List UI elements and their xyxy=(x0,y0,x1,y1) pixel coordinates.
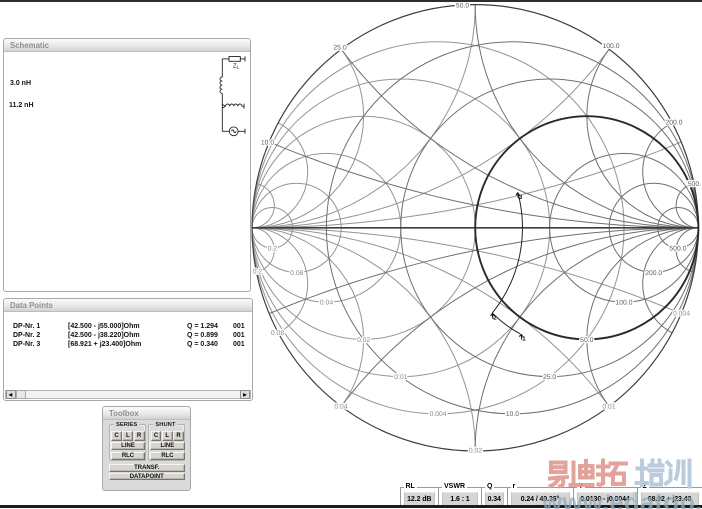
svg-text:0.004: 0.004 xyxy=(673,311,690,318)
svg-text:0.01: 0.01 xyxy=(602,404,615,411)
svg-text:0.02: 0.02 xyxy=(357,337,370,344)
svg-text:0.01: 0.01 xyxy=(394,374,407,381)
svg-text:100.0: 100.0 xyxy=(602,43,619,50)
svg-text:50.0: 50.0 xyxy=(580,337,593,344)
svg-text:ZL: ZL xyxy=(233,63,240,70)
svg-text:2: 2 xyxy=(493,315,497,322)
svg-text:0.08: 0.08 xyxy=(271,330,284,337)
svg-text:0.08: 0.08 xyxy=(290,270,303,277)
svg-text:200.0: 200.0 xyxy=(645,270,662,277)
svg-text:0.04: 0.04 xyxy=(320,300,333,307)
svg-text:500.0: 500.0 xyxy=(669,246,686,253)
svg-text:1: 1 xyxy=(522,335,526,342)
svg-text:0.04: 0.04 xyxy=(334,404,347,411)
svg-text:25.0: 25.0 xyxy=(543,374,556,381)
svg-text:50.0: 50.0 xyxy=(456,3,469,10)
svg-text:0.004: 0.004 xyxy=(430,411,447,418)
svg-text:10.0: 10.0 xyxy=(506,411,519,418)
svg-text:500.: 500. xyxy=(688,181,701,188)
svg-text:200.0: 200.0 xyxy=(665,120,682,127)
svg-text:0.2: 0.2 xyxy=(268,246,278,253)
svg-text:0.2: 0.2 xyxy=(253,269,263,276)
svg-text:0.02: 0.02 xyxy=(469,448,482,455)
svg-text:25.0: 25.0 xyxy=(333,45,346,52)
svg-text:100.0: 100.0 xyxy=(615,300,632,307)
svg-text:10.0: 10.0 xyxy=(261,140,274,147)
